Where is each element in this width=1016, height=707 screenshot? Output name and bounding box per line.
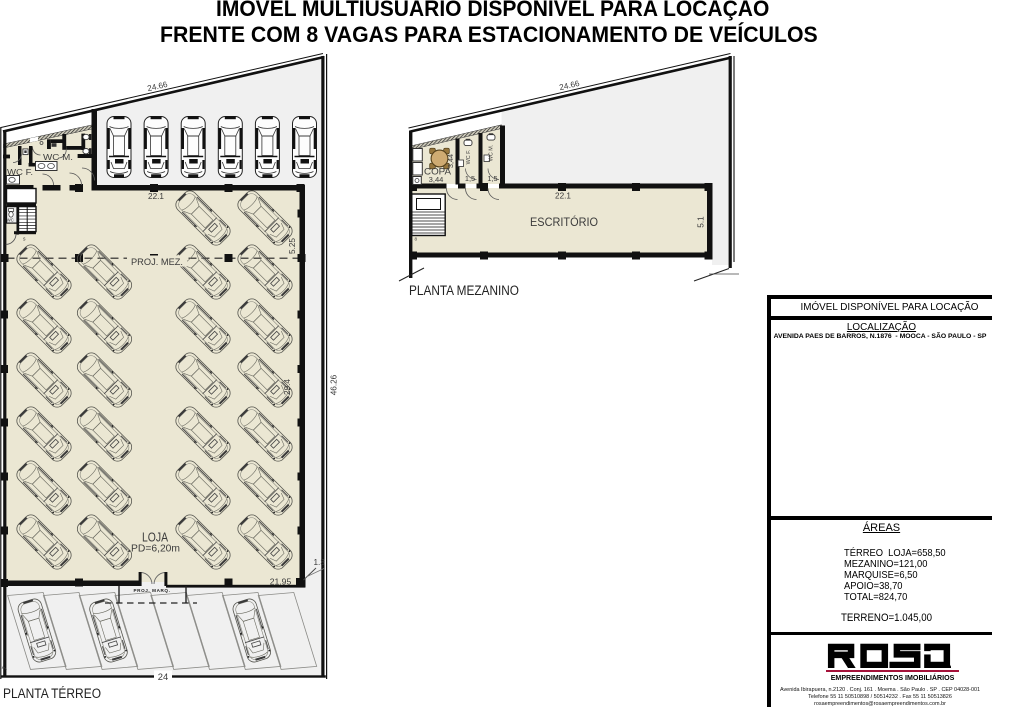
svg-text:PROJ. MEZ.: PROJ. MEZ. — [131, 257, 183, 267]
svg-text:24: 24 — [158, 671, 168, 682]
svg-text:22.1: 22.1 — [555, 192, 571, 201]
svg-text:1,5: 1,5 — [465, 174, 475, 183]
svg-text:5.1: 5.1 — [697, 216, 706, 228]
svg-text:3,44: 3,44 — [446, 154, 455, 168]
svg-text:46.26: 46.26 — [330, 374, 339, 395]
svg-text:WC M.: WC M. — [489, 145, 495, 161]
svg-text:1,5: 1,5 — [487, 174, 497, 183]
svg-text:WC: WC — [7, 218, 14, 223]
svg-text:29.4: 29.4 — [283, 379, 292, 395]
svg-text:22.1: 22.1 — [148, 192, 164, 201]
svg-text:5.25: 5.25 — [288, 238, 297, 254]
svg-text:WC F.: WC F. — [466, 150, 472, 165]
svg-text:PLANTA MEZANINO: PLANTA MEZANINO — [409, 283, 519, 298]
svg-text:WC F.: WC F. — [7, 167, 33, 177]
svg-text:WC M.: WC M. — [43, 152, 73, 162]
svg-text:PROJ. MARQ.: PROJ. MARQ. — [134, 588, 171, 593]
svg-text:1.3: 1.3 — [314, 558, 326, 567]
svg-text:3,44: 3,44 — [429, 175, 444, 184]
svg-text:PD=6,20m: PD=6,20m — [131, 543, 180, 555]
svg-text:ESCRITÓRIO: ESCRITÓRIO — [530, 214, 598, 229]
svg-text:PLANTA TÉRREO: PLANTA TÉRREO — [3, 686, 101, 701]
svg-text:21.95: 21.95 — [270, 576, 292, 586]
